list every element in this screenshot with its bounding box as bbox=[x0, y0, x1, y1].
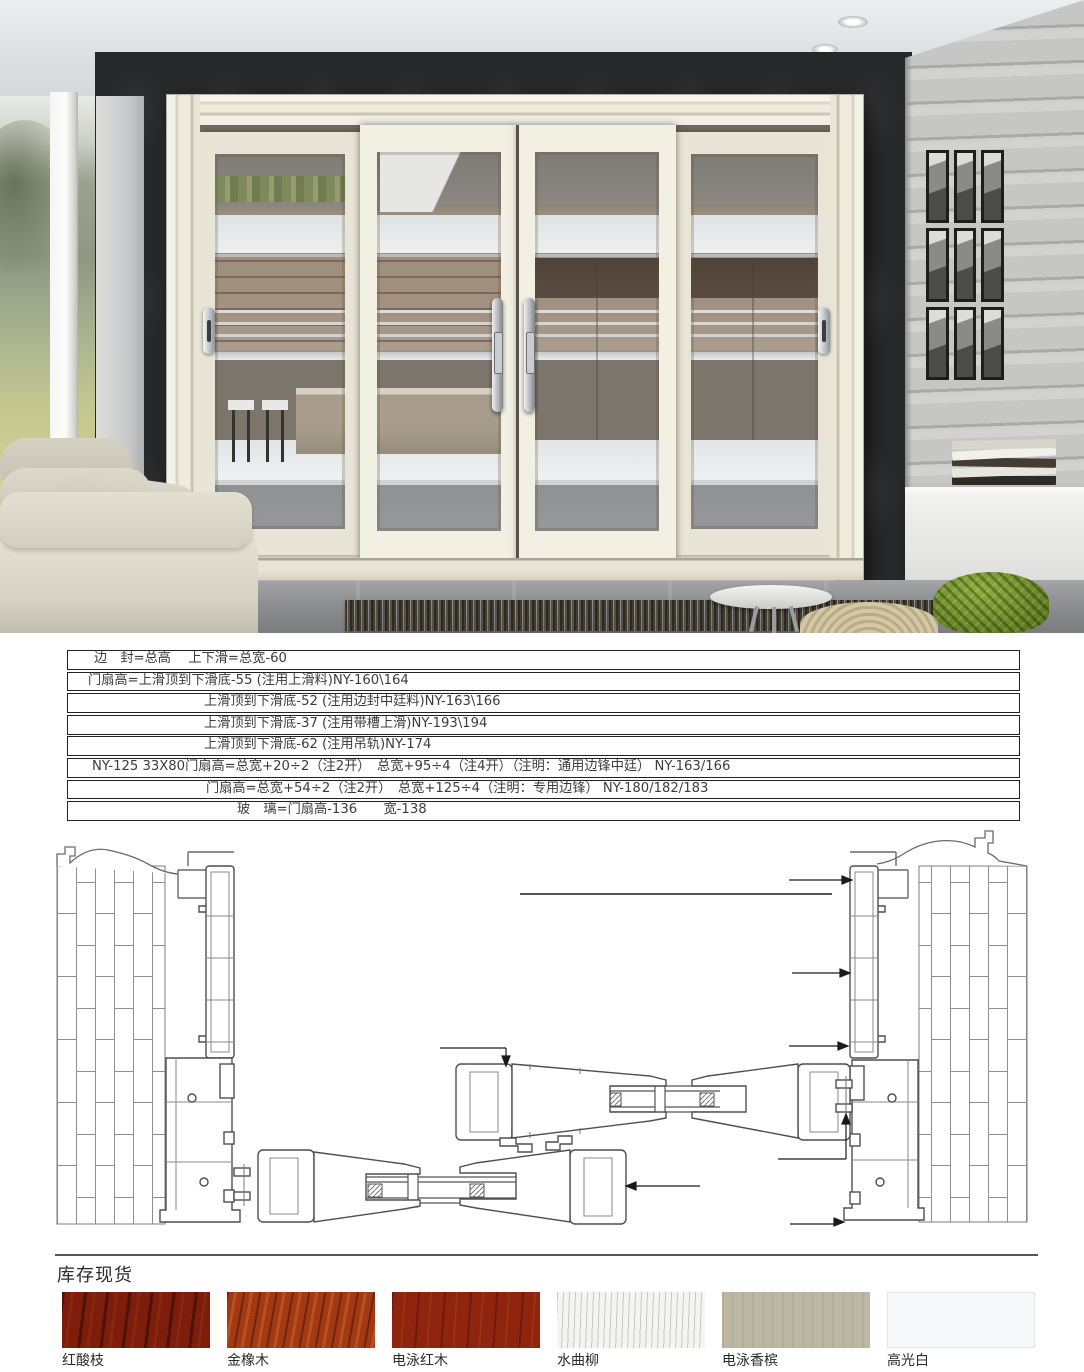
swatch-label: 红酸枝 bbox=[62, 1350, 104, 1370]
swatch-hongsuanzhi bbox=[62, 1292, 210, 1348]
table-leg bbox=[772, 607, 776, 633]
spec-table: 边 封=总高 上下滑=总宽-60 门扇高=上滑顶到下滑底-55 (注用上滑料)N… bbox=[67, 650, 1020, 823]
round-side-table bbox=[710, 585, 832, 609]
swatch-label: 金橡木 bbox=[227, 1350, 269, 1370]
door-pull-center-left bbox=[492, 298, 503, 412]
spec-row: 上滑顶到下滑底-62 (注用吊轨)NY-174 bbox=[67, 736, 1020, 756]
picture-frame bbox=[926, 228, 949, 301]
swatch-jinxiangmu bbox=[227, 1292, 375, 1348]
picture-frame bbox=[926, 307, 949, 380]
book-stack bbox=[952, 436, 1064, 488]
sliding-door-unit bbox=[167, 95, 863, 587]
door-handle-left bbox=[203, 308, 215, 354]
picture-frame bbox=[954, 228, 977, 301]
swatch-label: 电泳红木 bbox=[392, 1350, 448, 1370]
catalog-page: 边 封=总高 上下滑=总宽-60 门扇高=上滑顶到下滑底-55 (注用上滑料)N… bbox=[0, 0, 1084, 1372]
door-trim-right bbox=[830, 95, 863, 587]
swatch-shuiquliu bbox=[557, 1292, 705, 1348]
picture-frame bbox=[926, 150, 949, 223]
door-track-bottom bbox=[167, 558, 863, 580]
picture-frame bbox=[981, 150, 1004, 223]
picture-frame bbox=[954, 307, 977, 380]
picture-frame bbox=[954, 150, 977, 223]
swatch-label: 高光白 bbox=[887, 1350, 929, 1370]
door-panel-4 bbox=[676, 132, 833, 555]
door-panel-3 bbox=[518, 125, 676, 562]
spec-row: 门扇高=上滑顶到下滑底-55 (注用上滑料)NY-160\164 bbox=[67, 672, 1020, 692]
spec-row: 玻 璃=门扇高-136 宽-138 bbox=[67, 801, 1020, 821]
sofa-seat-cushion bbox=[0, 492, 252, 548]
swatch-label: 水曲柳 bbox=[557, 1350, 599, 1370]
book bbox=[952, 476, 1056, 485]
swatch-dianyongxiangbin bbox=[722, 1292, 870, 1348]
picture-frame bbox=[981, 307, 1004, 380]
spec-row: NY-125 33X80门扇高=总宽+20÷2（注2开） 总宽+95÷4（注4开… bbox=[67, 758, 1020, 778]
door-pull-center-right bbox=[524, 298, 535, 412]
swatch-label: 电泳香槟 bbox=[722, 1350, 778, 1370]
spec-row: 边 封=总高 上下滑=总宽-60 bbox=[67, 650, 1020, 670]
stock-heading: 库存现货 bbox=[57, 1261, 133, 1287]
swatch-gaoguangbai bbox=[887, 1292, 1035, 1348]
picture-frame bbox=[981, 228, 1004, 301]
swatch-dianyonghongmu bbox=[392, 1292, 540, 1348]
spec-row: 上滑顶到下滑底-37 (注用带槽上滑)NY-193\194 bbox=[67, 715, 1020, 735]
door-handle-right bbox=[818, 308, 830, 354]
green-knit-pouf bbox=[933, 572, 1049, 633]
cad-diagram: 33x80 金弧推拉门 NY-150 NY-115 NY-156 NY-125 … bbox=[0, 830, 1084, 1262]
recessed-light bbox=[838, 16, 868, 28]
section-divider bbox=[55, 1254, 1038, 1256]
book bbox=[952, 439, 1056, 450]
picture-frame-grid bbox=[926, 150, 1004, 380]
showroom-photo bbox=[0, 0, 1084, 633]
spec-row: 门扇高=总宽+54÷2（注2开） 总宽+125÷4（注明：专用边锋） NY-18… bbox=[67, 780, 1020, 800]
panel-meeting-seam bbox=[516, 125, 519, 562]
door-trim-top bbox=[167, 95, 863, 128]
spec-row: 上滑顶到下滑底-52 (注用边封中廷料)NY-163\166 bbox=[67, 693, 1020, 713]
cad-drawing bbox=[0, 830, 1084, 1262]
